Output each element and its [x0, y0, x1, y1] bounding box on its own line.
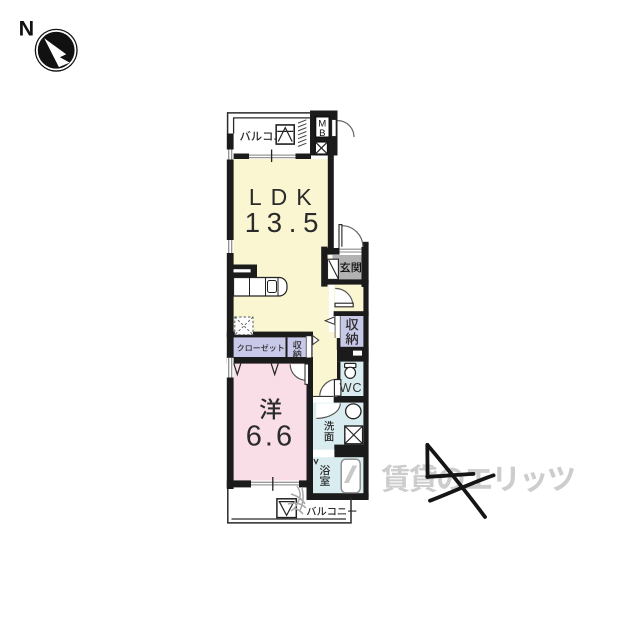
- svg-text:6.6: 6.6: [246, 421, 295, 453]
- svg-text:B: B: [319, 128, 325, 139]
- svg-text:13.5: 13.5: [245, 207, 325, 238]
- svg-text:N: N: [19, 17, 35, 41]
- svg-text:LDK: LDK: [249, 184, 321, 210]
- svg-text:WC: WC: [340, 380, 363, 395]
